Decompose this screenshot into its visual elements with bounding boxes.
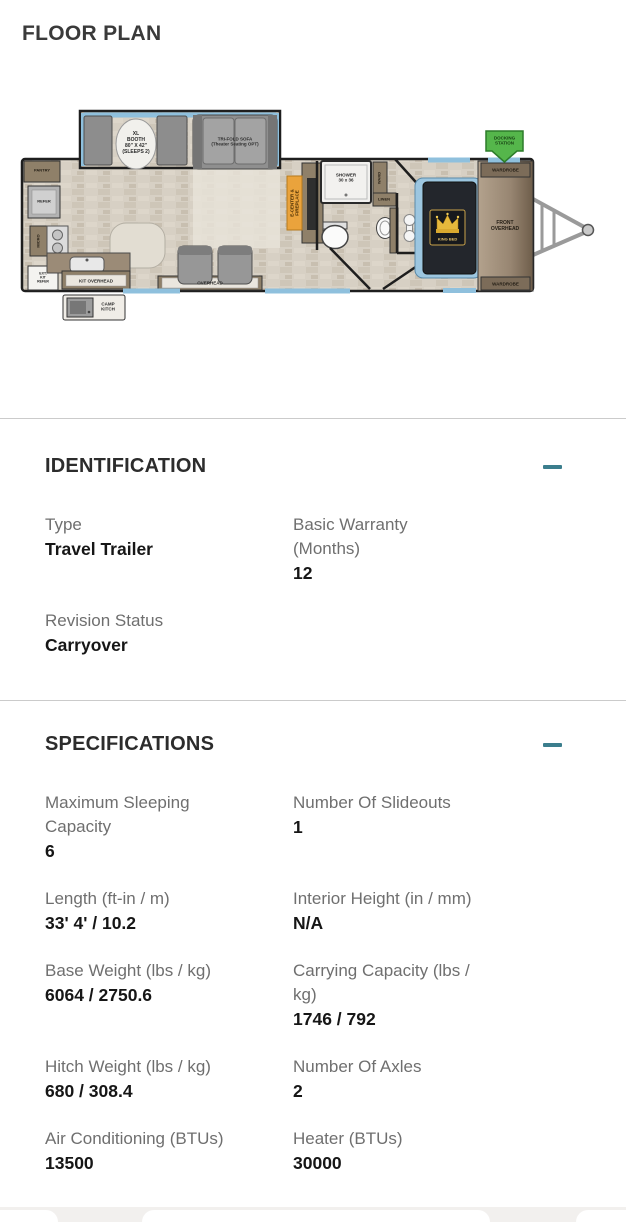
minus-icon <box>543 465 562 469</box>
floor-plan-drawing <box>20 98 610 338</box>
field-type: Type Travel Trailer <box>45 513 293 561</box>
field-number-of-slideouts: Number Of Slideouts 1 <box>293 791 562 839</box>
field-label: Type <box>45 513 293 537</box>
field-value: Travel Trailer <box>45 537 293 561</box>
section-divider <box>0 418 626 419</box>
field-value: 6064 / 2750.6 <box>45 983 293 1007</box>
bottom-cards-peek <box>0 1207 626 1222</box>
identification-section: IDENTIFICATION Type Travel Trailer Basic… <box>0 455 626 657</box>
field-value: 33' 4' / 10.2 <box>45 911 293 935</box>
field-label: Base Weight (lbs / kg) <box>45 959 293 983</box>
field-interior-height: Interior Height (in / mm) N/A <box>293 887 562 935</box>
field-label: Heater (BTUs) <box>293 1127 562 1151</box>
field-label: Hitch Weight (lbs / kg) <box>45 1055 293 1079</box>
field-value: N/A <box>293 911 562 935</box>
card-peek <box>0 1210 58 1222</box>
field-label: Number Of Slideouts <box>293 791 562 815</box>
specifications-collapse-button[interactable] <box>543 737 562 753</box>
field-label: Length (ft-in / m) <box>45 887 293 911</box>
field-value: 2 <box>293 1079 562 1103</box>
page-title: FLOOR PLAN <box>22 22 626 46</box>
field-carrying-capacity: Carrying Capacity (lbs / kg) 1746 / 792 <box>293 959 562 1031</box>
field-hitch-weight: Hitch Weight (lbs / kg) 680 / 308.4 <box>45 1055 293 1103</box>
field-value: 12 <box>293 561 562 585</box>
field-value: Carryover <box>45 633 293 657</box>
field-length: Length (ft-in / m) 33' 4' / 10.2 <box>45 887 293 935</box>
field-value: 1746 / 792 <box>293 1007 562 1031</box>
field-value: 6 <box>45 839 293 863</box>
specifications-section: SPECIFICATIONS Maximum Sleeping Capacity… <box>0 733 626 1175</box>
field-value: 680 / 308.4 <box>45 1079 293 1103</box>
field-air-conditioning: Air Conditioning (BTUs) 13500 <box>45 1127 293 1175</box>
field-label: Basic Warranty (Months) <box>293 513 562 561</box>
field-label: Maximum Sleeping Capacity <box>45 791 293 839</box>
field-basic-warranty: Basic Warranty (Months) 12 <box>293 513 562 585</box>
field-number-of-axles: Number Of Axles 2 <box>293 1055 562 1103</box>
floor-plan-image: XL BOOTH 80" X 42" (SLEEPS 2) TRI-FOLD S… <box>20 98 610 338</box>
field-value: 13500 <box>45 1151 293 1175</box>
field-label: Interior Height (in / mm) <box>293 887 562 911</box>
minus-icon <box>543 743 562 747</box>
card-peek <box>142 1210 490 1222</box>
field-max-sleeping-capacity: Maximum Sleeping Capacity 6 <box>45 791 293 863</box>
field-base-weight: Base Weight (lbs / kg) 6064 / 2750.6 <box>45 959 293 1007</box>
field-label: Revision Status <box>45 609 293 633</box>
card-peek <box>576 1210 626 1222</box>
section-divider <box>0 700 626 701</box>
field-label: Carrying Capacity (lbs / kg) <box>293 959 562 1007</box>
field-heater: Heater (BTUs) 30000 <box>293 1127 562 1175</box>
field-value: 1 <box>293 815 562 839</box>
identification-collapse-button[interactable] <box>543 459 562 475</box>
identification-heading: IDENTIFICATION <box>45 455 206 478</box>
field-value: 30000 <box>293 1151 562 1175</box>
field-revision-status: Revision Status Carryover <box>45 609 293 657</box>
field-label: Air Conditioning (BTUs) <box>45 1127 293 1151</box>
specifications-heading: SPECIFICATIONS <box>45 733 214 756</box>
field-label: Number Of Axles <box>293 1055 562 1079</box>
